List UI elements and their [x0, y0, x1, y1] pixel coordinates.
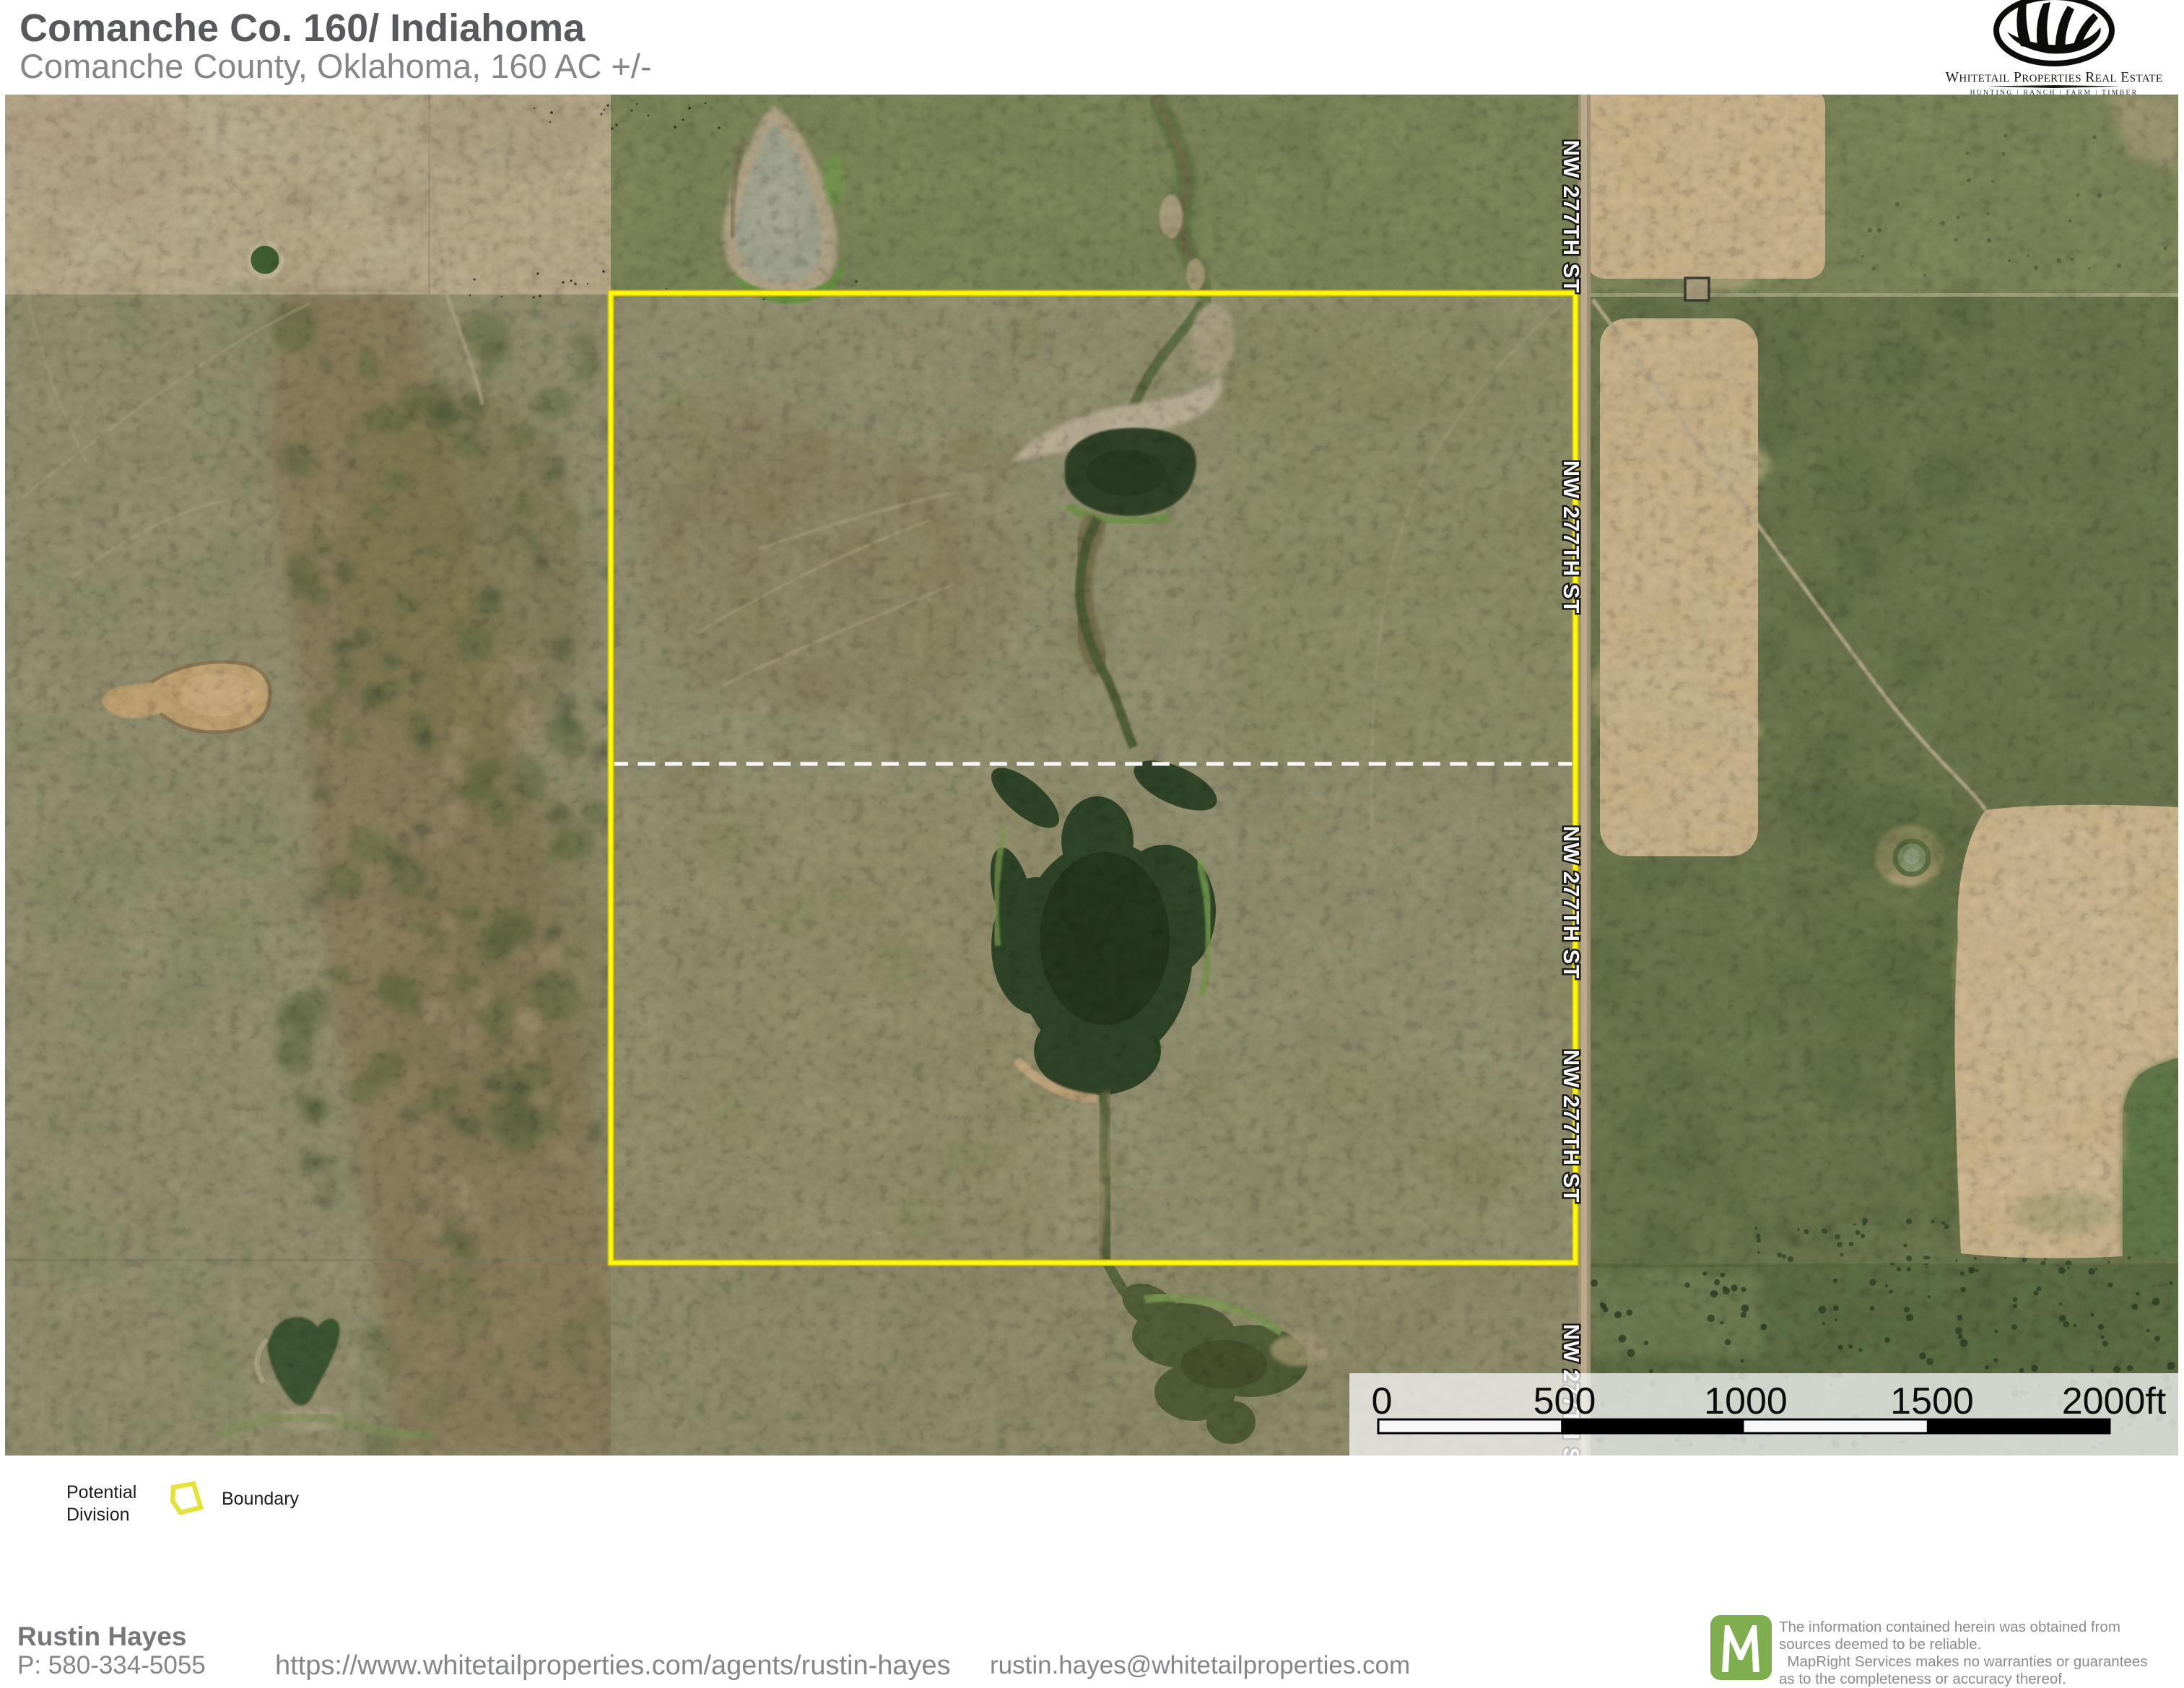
svg-text:1500: 1500: [1890, 1380, 1974, 1422]
svg-text:WHITETAIL PROPERTIES REAL ESTA: WHITETAIL PROPERTIES REAL ESTATE: [1946, 70, 2163, 85]
svg-text:0: 0: [1372, 1380, 1393, 1422]
svg-text:NW 277TH ST: NW 277TH ST: [1559, 1050, 1584, 1204]
svg-text:NW 277TH ST: NW 277TH ST: [1559, 461, 1584, 614]
svg-text:NW 277TH ST: NW 277TH ST: [1559, 140, 1584, 294]
svg-text:NW 277TH ST: NW 277TH ST: [1559, 826, 1584, 980]
svg-text:1000: 1000: [1704, 1380, 1788, 1422]
svg-text:2000ft: 2000ft: [2062, 1380, 2167, 1422]
svg-text:500: 500: [1533, 1380, 1596, 1422]
